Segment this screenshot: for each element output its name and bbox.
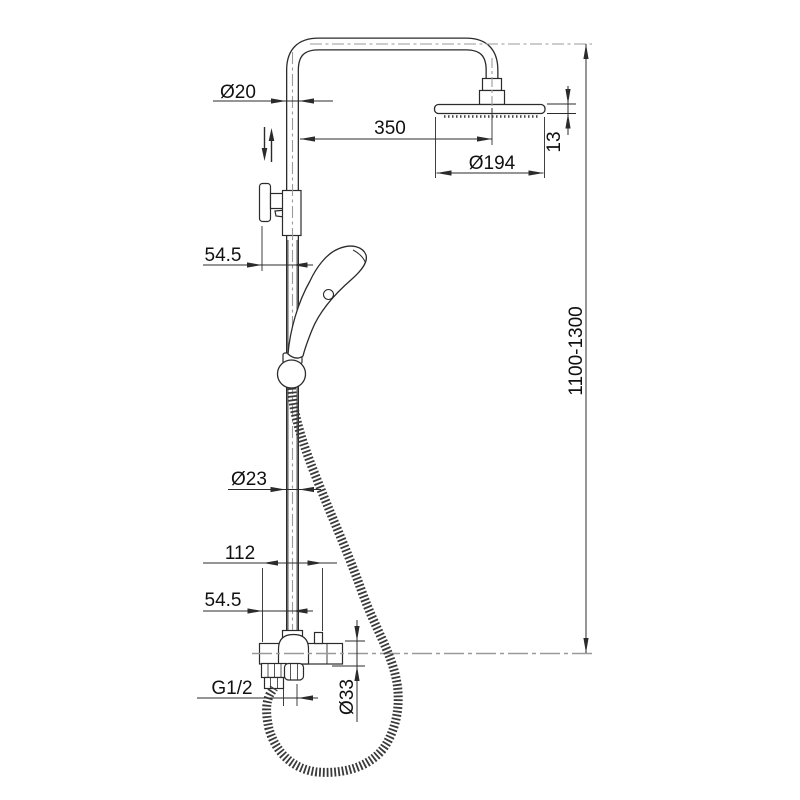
dim-column-diameter: Ø23 (228, 469, 321, 492)
head-plate (435, 105, 546, 114)
dim-riser-diameter: Ø20 (213, 82, 333, 104)
dim-label-hose-thread: G1/2 (211, 678, 252, 699)
rain-shower-head (435, 79, 546, 117)
dim-label-riser-diameter: Ø20 (220, 82, 256, 103)
diverter-knob (315, 633, 323, 644)
hand-shower-body (288, 246, 366, 358)
mixer-valve (260, 631, 343, 689)
dim-hose-thread: G1/2 (197, 678, 318, 706)
height-adjust-arrows-icon (262, 127, 275, 162)
shower-column-diagram: Ø20 350 Ø194 (0, 0, 800, 800)
dimension-annotations: Ø20 350 Ø194 (197, 44, 589, 722)
dim-height-range: 1100-1300 (566, 44, 589, 653)
dim-mixer-body-diameter: Ø33 (332, 620, 365, 722)
wall-slider-bracket (260, 184, 302, 236)
slider-block (283, 191, 302, 236)
hang-hook (324, 290, 334, 300)
center-outlet (285, 664, 304, 681)
hose-outlet-nut (262, 664, 287, 678)
hose-outlet-lower (265, 678, 284, 689)
dim-label-head-diameter: Ø194 (469, 153, 516, 174)
arrowhead (271, 98, 286, 103)
ball-joint (278, 360, 306, 388)
technical-drawing-canvas: Ø20 350 Ø194 (0, 0, 800, 800)
dim-label-mixer-body-diameter: Ø33 (337, 679, 358, 715)
dim-label-height-range: 1100-1300 (566, 306, 587, 395)
dim-label-arm-reach: 350 (374, 118, 406, 139)
dim-label-column-diameter: Ø23 (231, 469, 267, 490)
dim-label-wall-offset-lower: 54.5 (205, 590, 242, 611)
dim-head-diameter: Ø194 (436, 117, 545, 178)
round-valve-housing (279, 635, 309, 665)
dim-label-head-thickness: 13 (544, 131, 565, 152)
wall-plate (260, 184, 271, 222)
dim-label-mixer-depth: 112 (225, 543, 255, 564)
dim-head-thickness: 13 (544, 86, 576, 153)
arrowhead (299, 98, 314, 103)
dim-label-wall-offset-upper: 54.5 (205, 245, 242, 266)
